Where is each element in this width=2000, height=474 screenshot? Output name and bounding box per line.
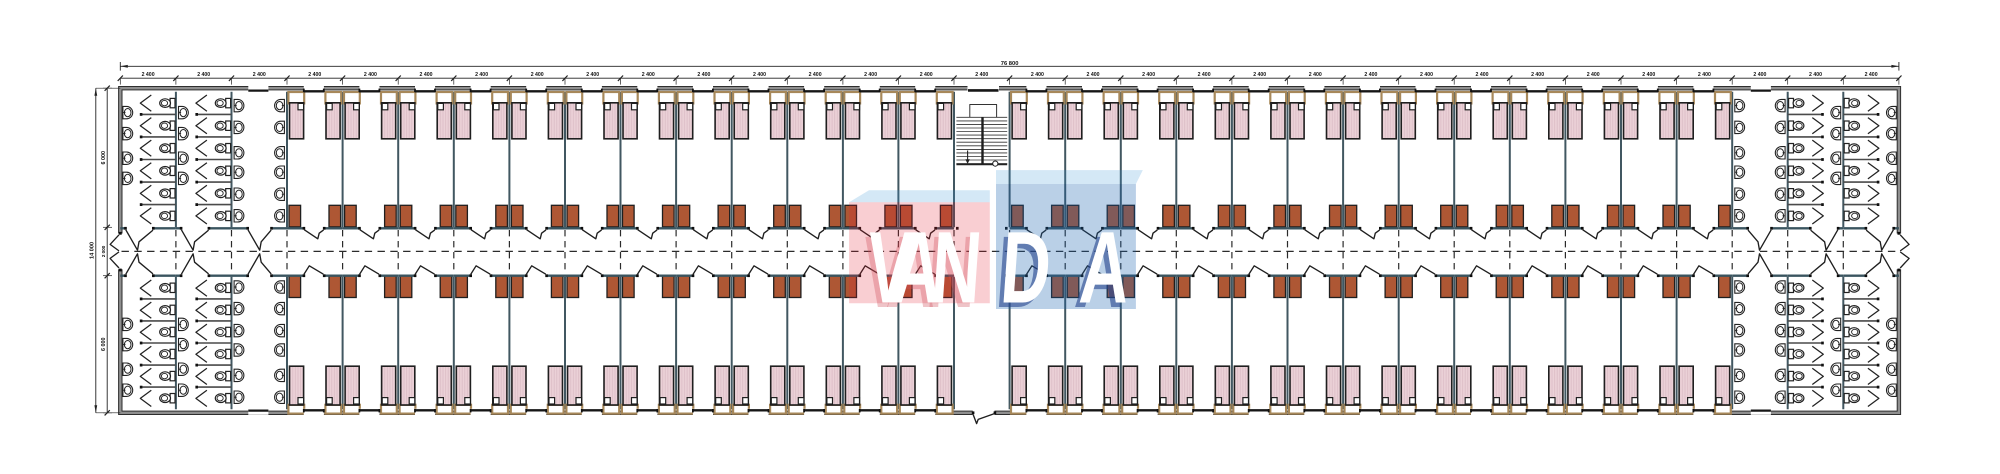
svg-text:2 400: 2 400 <box>253 72 266 78</box>
svg-text:2 400: 2 400 <box>420 72 433 78</box>
svg-text:N: N <box>928 211 985 325</box>
svg-text:2 400: 2 400 <box>1309 72 1322 78</box>
svg-text:2 400: 2 400 <box>809 72 822 78</box>
svg-text:2 400: 2 400 <box>142 72 155 78</box>
svg-text:2 400: 2 400 <box>1198 72 1211 78</box>
svg-text:2 400: 2 400 <box>642 72 655 78</box>
svg-text:2 400: 2 400 <box>864 72 877 78</box>
svg-text:2 400: 2 400 <box>531 72 544 78</box>
svg-text:2 400: 2 400 <box>975 72 988 78</box>
svg-text:2 400: 2 400 <box>1087 72 1100 78</box>
svg-text:2 400: 2 400 <box>1364 72 1377 78</box>
svg-text:2 400: 2 400 <box>197 72 210 78</box>
svg-text:2 400: 2 400 <box>697 72 710 78</box>
svg-text:2 400: 2 400 <box>1587 72 1600 78</box>
svg-text:2 400: 2 400 <box>1031 72 1044 78</box>
svg-text:2 400: 2 400 <box>1531 72 1544 78</box>
svg-text:2 400: 2 400 <box>1698 72 1711 78</box>
svg-text:2 400: 2 400 <box>364 72 377 78</box>
svg-text:A: A <box>1076 211 1133 325</box>
svg-text:2 400: 2 400 <box>1476 72 1489 78</box>
svg-text:D: D <box>997 211 1054 325</box>
svg-text:2 400: 2 400 <box>1865 72 1878 78</box>
svg-text:2 400: 2 400 <box>1642 72 1655 78</box>
svg-text:2 400: 2 400 <box>1809 72 1822 78</box>
svg-text:76 800: 76 800 <box>1001 61 1019 67</box>
svg-text:2 000: 2 000 <box>101 245 106 257</box>
svg-text:14 000: 14 000 <box>90 242 96 259</box>
svg-text:2 400: 2 400 <box>586 72 599 78</box>
svg-text:2 400: 2 400 <box>753 72 766 78</box>
svg-text:2 400: 2 400 <box>308 72 321 78</box>
svg-text:6 000: 6 000 <box>101 151 107 165</box>
svg-text:2 400: 2 400 <box>1753 72 1766 78</box>
svg-text:2 400: 2 400 <box>1420 72 1433 78</box>
svg-text:2 400: 2 400 <box>475 72 488 78</box>
svg-text:6 000: 6 000 <box>101 337 107 351</box>
svg-text:2 400: 2 400 <box>920 72 933 78</box>
svg-text:2 400: 2 400 <box>1142 72 1155 78</box>
svg-text:2 400: 2 400 <box>1253 72 1266 78</box>
